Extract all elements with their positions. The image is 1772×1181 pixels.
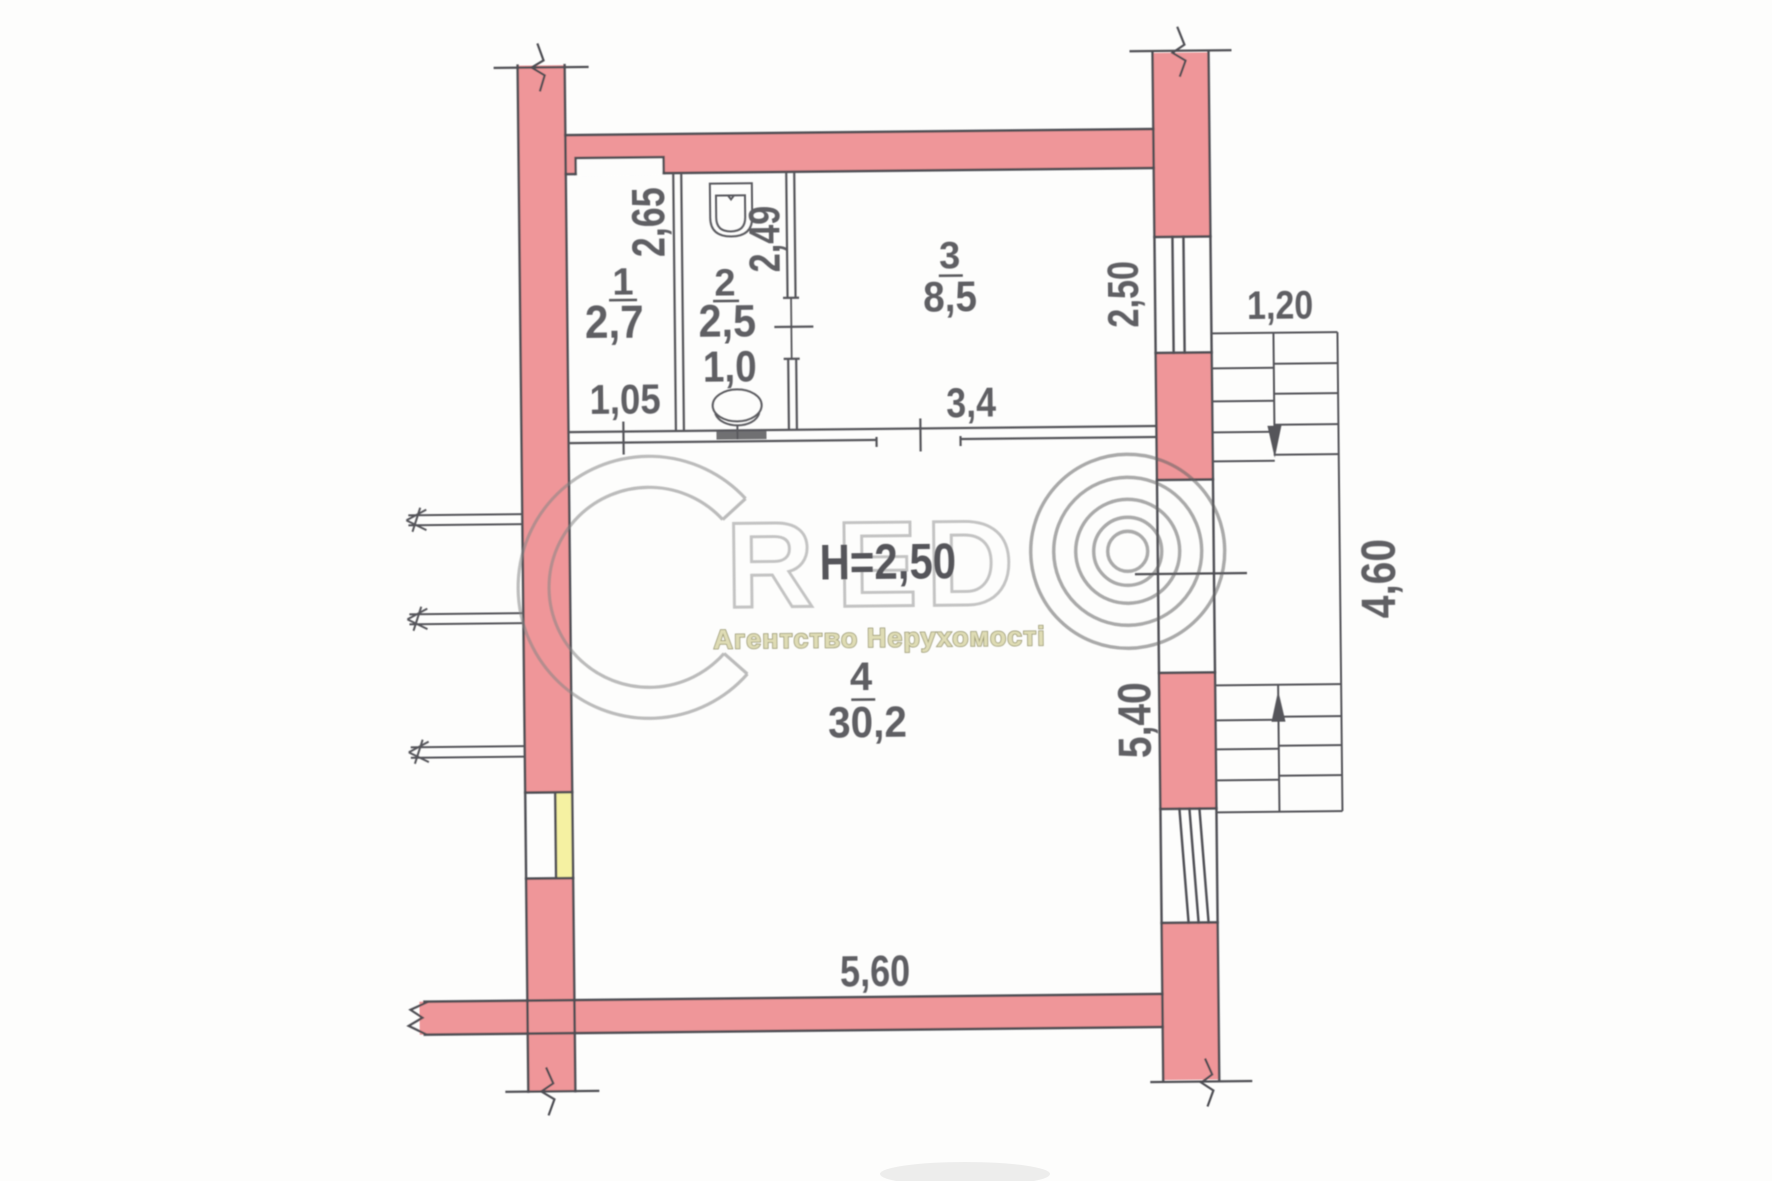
- svg-text:R: R: [725, 497, 815, 634]
- svg-text:4,60: 4,60: [1353, 539, 1407, 619]
- svg-text:2,49: 2,49: [740, 205, 790, 272]
- svg-text:30,2: 30,2: [828, 697, 907, 747]
- svg-text:5,60: 5,60: [840, 946, 911, 996]
- svg-text:8,5: 8,5: [923, 272, 977, 321]
- svg-text:3: 3: [939, 235, 961, 277]
- svg-text:2,50: 2,50: [1099, 261, 1149, 328]
- svg-text:1,0: 1,0: [703, 341, 757, 391]
- svg-text:4: 4: [850, 655, 873, 699]
- svg-text:1,20: 1,20: [1247, 282, 1314, 328]
- svg-text:2,7: 2,7: [585, 297, 644, 349]
- svg-text:Агентство Нерухомості: Агентство Нерухомості: [713, 621, 1046, 654]
- svg-text:H=2,50: H=2,50: [819, 533, 956, 591]
- svg-text:2,65: 2,65: [623, 187, 675, 257]
- svg-text:1,05: 1,05: [589, 376, 661, 424]
- svg-text:2,5: 2,5: [698, 297, 756, 348]
- svg-text:5,40: 5,40: [1109, 682, 1162, 759]
- svg-text:3,4: 3,4: [946, 380, 996, 427]
